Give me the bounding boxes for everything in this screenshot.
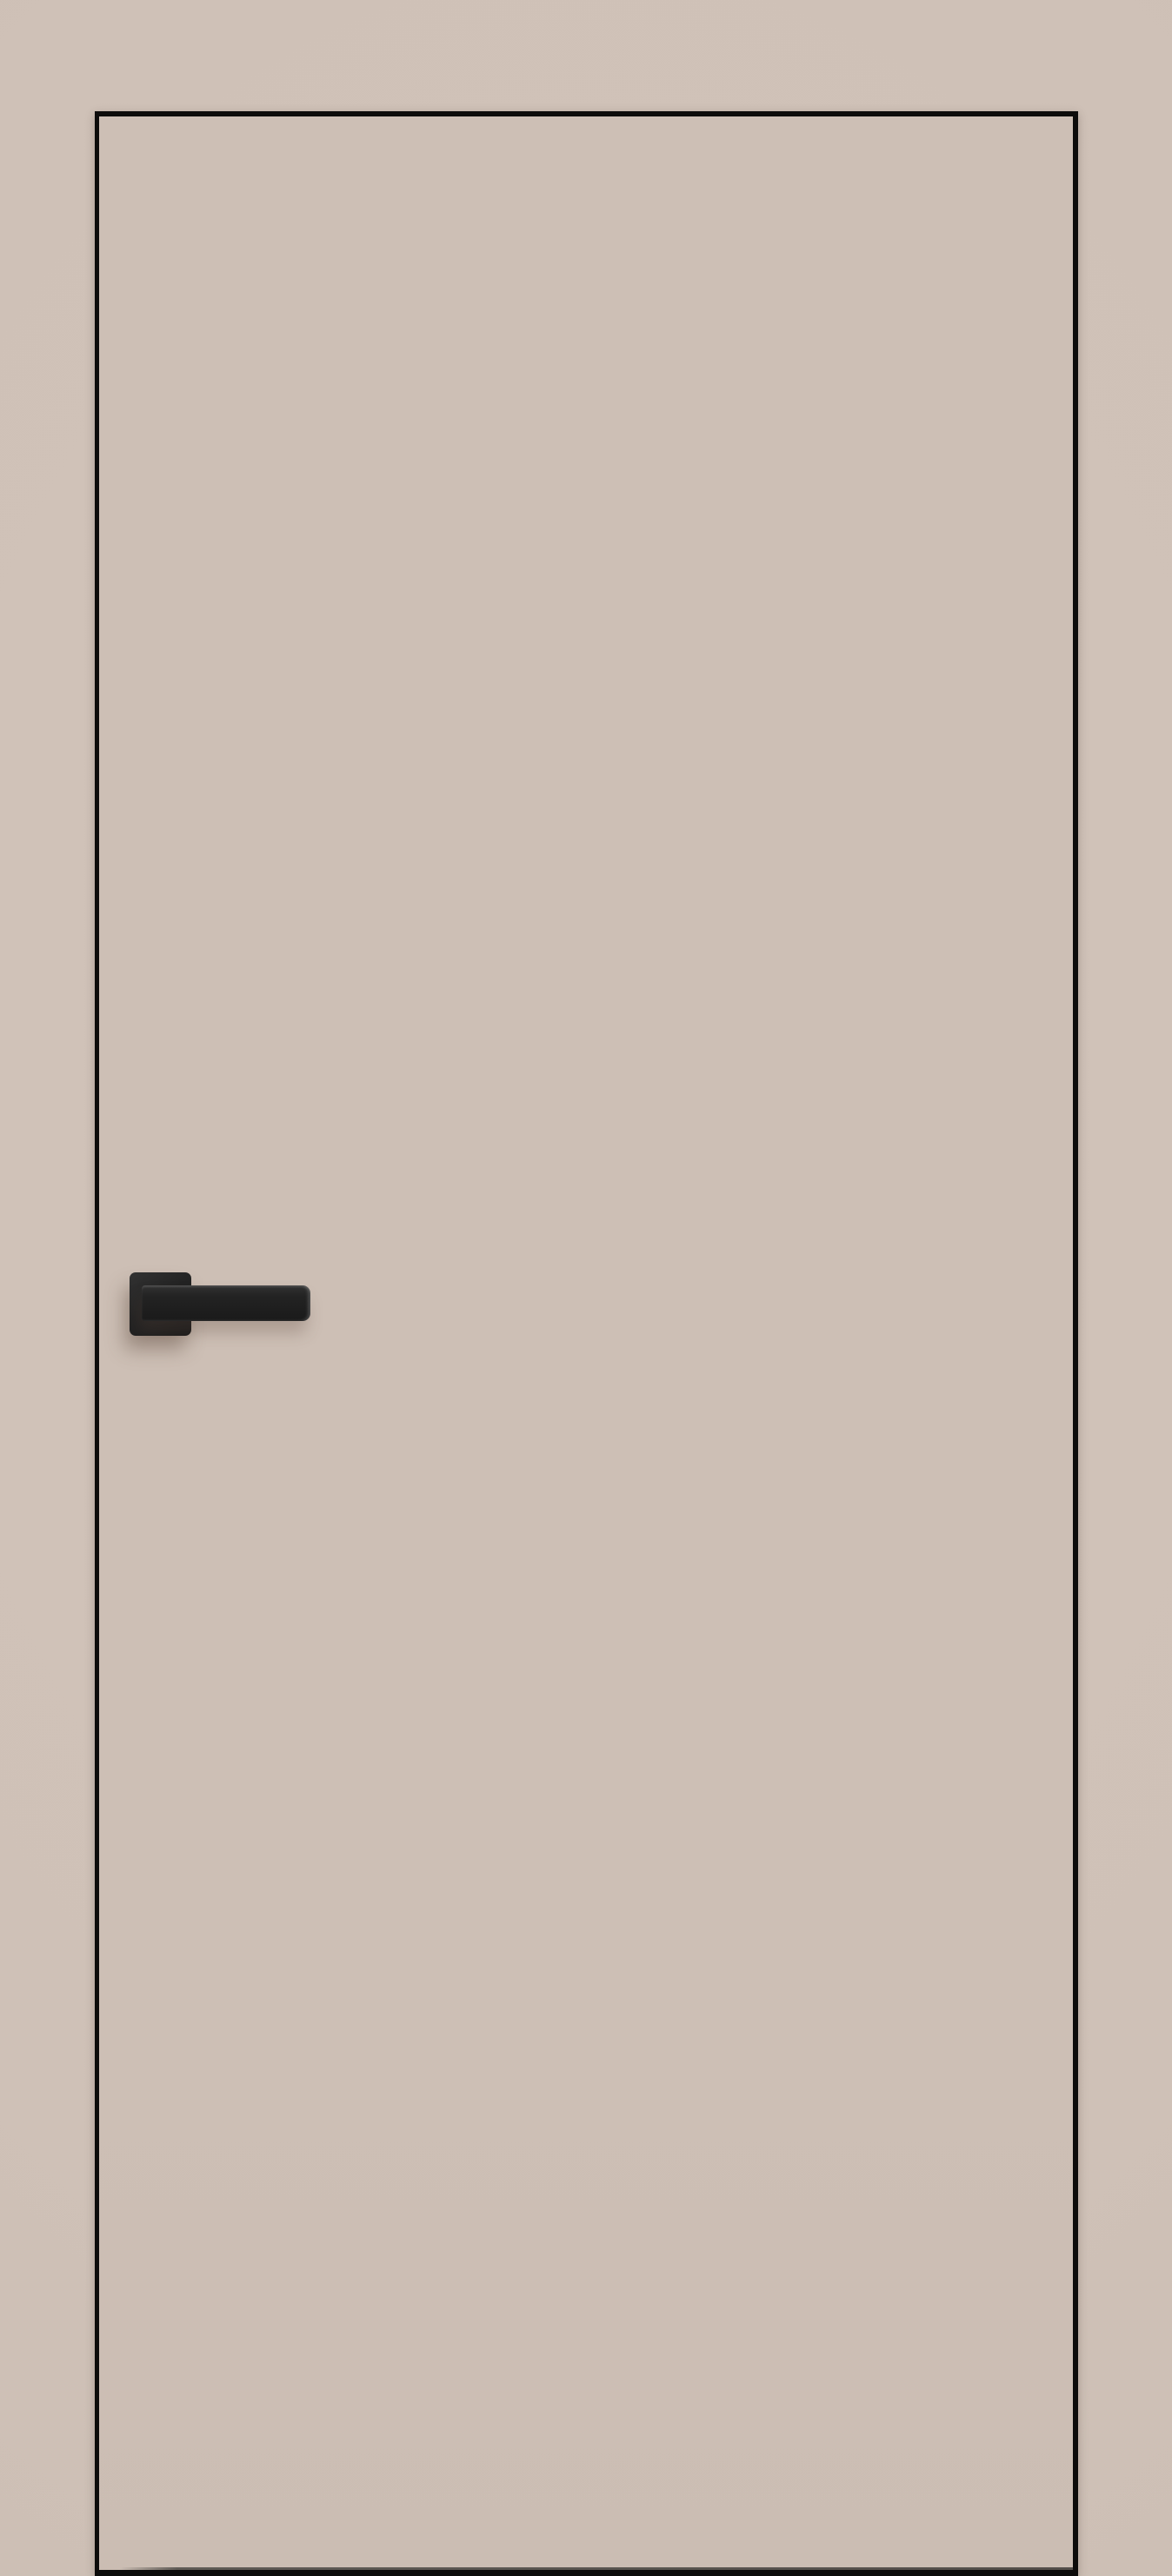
wall-background xyxy=(0,0,1172,2576)
floor-gap-shadow xyxy=(120,2567,1073,2570)
door-leaf xyxy=(95,111,1078,2576)
handle-lever xyxy=(142,1285,310,1321)
